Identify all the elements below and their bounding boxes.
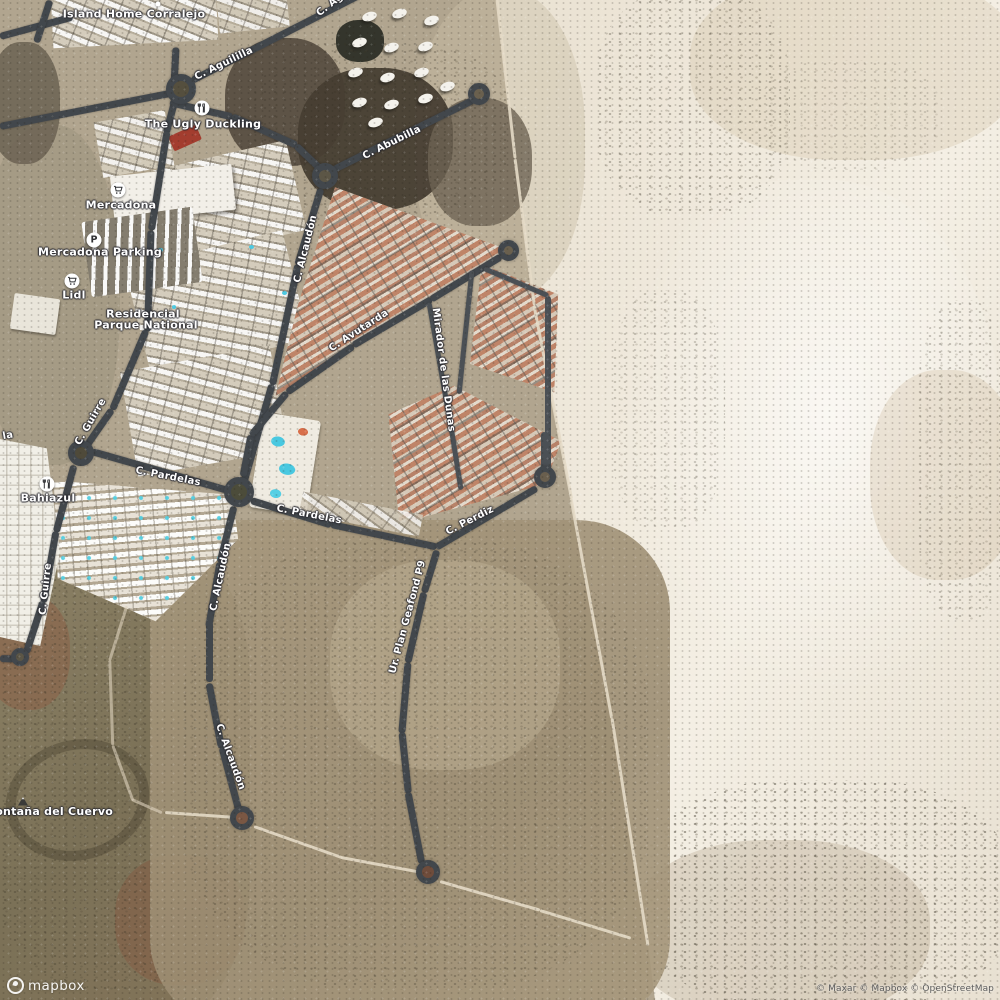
road-perdiz-north-stub <box>541 432 547 470</box>
roundabout-abubilla-east <box>468 83 490 105</box>
bungalow <box>361 10 378 23</box>
restaurant-icon[interactable] <box>195 101 210 116</box>
roundabout-left-edge <box>11 648 29 666</box>
grocery-icon[interactable] <box>111 183 126 198</box>
villa-grid-mirador-south <box>383 383 565 525</box>
bungalow <box>423 14 440 27</box>
roundabout-perdiz <box>534 466 556 488</box>
pool <box>282 291 287 295</box>
roundabout-alcaudon-end <box>230 806 254 830</box>
pool <box>249 245 254 249</box>
poi-dot-icon[interactable] <box>156 2 161 7</box>
mapbox-wordmark: mapbox <box>28 978 85 994</box>
map-attribution[interactable]: © Maxar © Mapbox © OpenStreetMap <box>816 984 994 994</box>
roundabout-abubilla-west <box>312 163 338 189</box>
roundabout-grid-east <box>498 240 519 261</box>
lidl-building <box>10 293 61 335</box>
street-label-fragment-la: la <box>2 429 15 442</box>
poi-label-mercadona: Mercadona <box>86 200 157 213</box>
scrub-speckle-5 <box>760 60 940 170</box>
grocery-icon[interactable] <box>65 274 80 289</box>
roundabout-pardelas <box>224 477 254 507</box>
map-canvas[interactable]: P Island Home Corralejo C. Aguililla C. … <box>0 0 1000 1000</box>
poi-label-montana: Montaña del Cuervo <box>0 806 113 819</box>
poi-label-island-home: Island Home Corralejo <box>63 9 206 22</box>
bungalow <box>391 7 408 20</box>
scrub-speckle-2 <box>610 290 725 530</box>
poi-label-mercadona-parking: Mercadona Parking <box>38 247 162 260</box>
scrub-speckle-3 <box>640 780 1000 1000</box>
poi-label-residencial-line2: Parque National <box>94 320 198 333</box>
roundabout-geafond-end <box>416 860 440 884</box>
mountain-icon[interactable] <box>17 791 29 801</box>
poi-label-ugly-duckling: The Ugly Duckling <box>145 119 262 132</box>
road-alcaudon-south <box>206 622 213 682</box>
mapbox-logo-icon <box>7 977 24 994</box>
roundabout-aguililla <box>166 74 196 104</box>
scrub-speckle-4 <box>915 300 1000 620</box>
restaurant-icon[interactable] <box>40 477 55 492</box>
mapbox-logo[interactable]: mapbox <box>7 977 85 994</box>
poi-label-bahiazul: Bahiazul <box>21 493 76 506</box>
top-buildings-east <box>216 0 289 34</box>
poi-label-lidl: Lidl <box>62 290 85 303</box>
rocky-edge-nw <box>0 42 60 164</box>
